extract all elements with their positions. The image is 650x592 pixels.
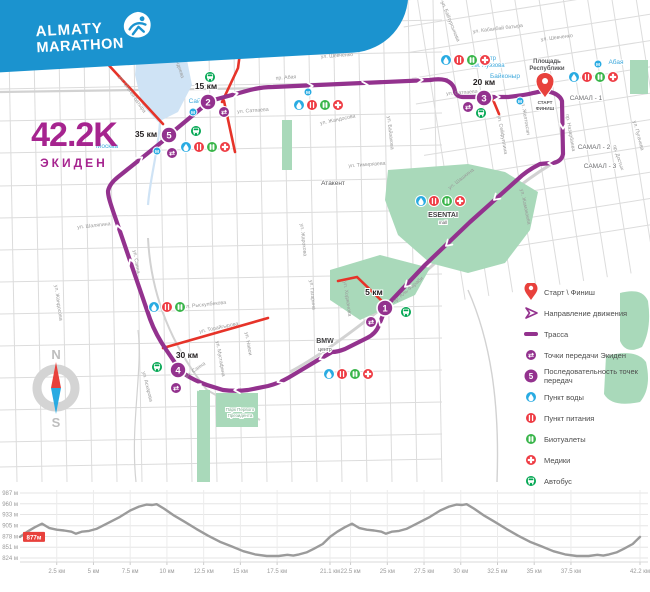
- x-tick-label: 37.5 км: [561, 569, 581, 575]
- finish-label: ФИНИШ: [536, 106, 555, 111]
- km-label: 5 км: [365, 287, 383, 297]
- y-tick-label: 878 м: [2, 534, 18, 540]
- x-tick-label: 10 км: [159, 569, 174, 575]
- x-tick-label: 5 км: [88, 569, 100, 575]
- svg-text:⇄: ⇄: [528, 351, 534, 359]
- bus-icon: [401, 307, 412, 318]
- wc-icon: [350, 369, 361, 380]
- km-label: 35 км: [135, 129, 157, 139]
- legend-icon-wrap: [521, 451, 541, 469]
- metro-icon: М: [516, 97, 524, 105]
- legend-icon-wrap: [521, 430, 541, 448]
- exchange-icon: ⇄: [167, 148, 178, 159]
- food-icon: [337, 369, 348, 380]
- place-label: Республики: [529, 65, 564, 72]
- metro-icon: М: [189, 108, 197, 116]
- race-distance: 42.2K: [24, 118, 124, 152]
- bus-icon: [191, 126, 202, 137]
- legend-icon-wrap: 5: [521, 367, 541, 385]
- svg-text:М: М: [518, 99, 522, 105]
- legend-food-icon: [522, 409, 540, 427]
- food-icon: [307, 100, 318, 111]
- svg-text:⇄: ⇄: [173, 384, 179, 392]
- medic-icon: [363, 369, 374, 380]
- water-icon: [441, 55, 452, 66]
- metro-icon: М: [153, 147, 161, 155]
- legend-label: Медики: [541, 456, 570, 465]
- start-elevation-value: 877м: [27, 534, 42, 541]
- exchange-icon: ⇄: [171, 383, 182, 394]
- medic-icon: [333, 100, 344, 111]
- exchange-icon: ⇄: [219, 107, 230, 118]
- compass-s-label: S: [52, 415, 61, 430]
- park-strip-west: [282, 120, 292, 170]
- place-label: центр: [318, 347, 332, 353]
- legend-pin-icon: [522, 283, 540, 301]
- x-tick-label: 30 км: [453, 569, 468, 575]
- x-tick-label: 17.5 км: [267, 569, 287, 575]
- elevation-chart: 987 м960 м933 м905 м878 м851 м824 м2.5 к…: [0, 485, 650, 592]
- legend-bus-icon: [522, 472, 540, 490]
- water-icon: [324, 369, 335, 380]
- place-label: САМАЛ - 2: [578, 144, 611, 151]
- svg-text:2: 2: [205, 97, 210, 108]
- water-icon: [149, 302, 160, 313]
- legend-icon-wrap: [521, 409, 541, 427]
- legend-number-icon: 5: [522, 367, 540, 385]
- x-tick-label: 15 км: [233, 569, 248, 575]
- legend-medic-icon: [522, 451, 540, 469]
- legend-icon-wrap: ⇄: [521, 346, 541, 364]
- metro-icon: М: [304, 88, 312, 96]
- km-marker: 3: [476, 90, 492, 106]
- x-tick-label: 12.5 км: [194, 569, 214, 575]
- bus-icon: [476, 108, 487, 119]
- legend-track-icon: [522, 325, 540, 343]
- food-icon: [194, 142, 205, 153]
- x-tick-label: 21.1 км: [320, 569, 340, 575]
- food-icon: [526, 413, 537, 424]
- svg-text:⇄: ⇄: [368, 318, 374, 326]
- svg-text:М: М: [191, 110, 195, 116]
- legend-icon-wrap: [521, 388, 541, 406]
- logo: ALMATY MARATHON: [35, 20, 124, 57]
- y-tick-label: 960 м: [2, 502, 18, 508]
- food-icon: [162, 302, 173, 313]
- wc-icon: [595, 72, 606, 83]
- legend-icon-wrap: [521, 325, 541, 343]
- medic-icon: [220, 142, 231, 153]
- legend-item: Направление движения: [521, 304, 649, 322]
- svg-text:5: 5: [529, 372, 534, 381]
- place-label: mall: [439, 220, 447, 225]
- wc-icon: [207, 142, 218, 153]
- place-label: САМАЛ - 1: [570, 95, 603, 102]
- place-label: САМАЛ - 3: [584, 163, 617, 170]
- medic-icon: [455, 196, 466, 207]
- place-label: Парк Первого: [226, 407, 255, 412]
- exchange-icon: ⇄: [366, 317, 377, 328]
- x-tick-label: 7.5 км: [122, 569, 139, 575]
- legend-wc-icon: [522, 430, 540, 448]
- x-tick-label: 42.2 км: [630, 569, 650, 575]
- legend-label: Точки передачи Экиден: [541, 351, 626, 360]
- svg-text:М: М: [306, 90, 310, 96]
- x-tick-label: 25 км: [380, 569, 395, 575]
- water-icon: [416, 196, 427, 207]
- race-type: ЭКИДЕН: [24, 156, 124, 170]
- x-tick-label: 22.5 км: [341, 569, 361, 575]
- legend-item: 5Последовательность точек передач: [521, 367, 649, 385]
- svg-text:М: М: [596, 62, 600, 68]
- water-icon: [569, 72, 580, 83]
- svg-text:1: 1: [382, 303, 388, 314]
- legend-water-icon: [522, 388, 540, 406]
- legend-item: Пункт воды: [521, 388, 649, 406]
- metro-icon: М: [594, 60, 602, 68]
- legend-label: Трасса: [541, 330, 568, 339]
- svg-text:⇄: ⇄: [221, 108, 227, 116]
- legend-item: Биотуалеты: [521, 430, 649, 448]
- wc-icon: [442, 196, 453, 207]
- chart-background: [0, 485, 650, 592]
- legend-label: Пункт воды: [541, 393, 584, 402]
- y-tick-label: 851 м: [2, 545, 18, 551]
- bus-icon: [526, 476, 537, 487]
- place-label: ESENTAI: [428, 212, 458, 219]
- km-marker: 1: [377, 300, 393, 316]
- legend-label: Биотуалеты: [541, 435, 586, 444]
- km-marker: 5: [161, 127, 177, 143]
- legend-exchange-icon: ⇄: [522, 346, 540, 364]
- water-icon: [181, 142, 192, 153]
- legend-item: Пункт питания: [521, 409, 649, 427]
- legend-icon-wrap: [521, 283, 541, 301]
- medic-icon: [608, 72, 619, 83]
- legend-icon-wrap: [521, 472, 541, 490]
- water-icon: [526, 392, 537, 403]
- y-tick-label: 824 м: [2, 556, 18, 562]
- wc-icon: [467, 55, 478, 66]
- legend-label: Последовательность точек передач: [541, 367, 649, 385]
- exchange-icon: ⇄: [463, 102, 474, 113]
- park-ne: [630, 60, 648, 94]
- legend-label: Автобус: [541, 477, 572, 486]
- start-label: СТАРТ: [538, 100, 553, 105]
- wc-icon: [320, 100, 331, 111]
- x-tick-label: 32.5 км: [487, 569, 507, 575]
- km-label: 20 км: [473, 77, 495, 87]
- wc-icon: [526, 434, 537, 445]
- food-icon: [454, 55, 465, 66]
- legend-label: Направление движения: [541, 309, 627, 318]
- runner-emblem-icon: [121, 10, 157, 42]
- place-label-blue: Абая: [608, 58, 624, 66]
- legend-direction-icon: [522, 304, 540, 322]
- race-title: 42.2K ЭКИДЕН: [24, 118, 124, 170]
- place-label: Атакент: [321, 180, 345, 187]
- x-tick-label: 35 км: [527, 569, 542, 575]
- km-marker: 4: [170, 362, 186, 378]
- legend-item: Медики: [521, 451, 649, 469]
- food-icon: [429, 196, 440, 207]
- y-tick-label: 905 м: [2, 524, 18, 530]
- medic-icon: [526, 455, 537, 466]
- svg-text:3: 3: [481, 93, 486, 104]
- map-legend: Старт \ ФинишНаправление движенияТрасса⇄…: [521, 283, 649, 493]
- svg-text:М: М: [155, 149, 159, 155]
- legend-item: Трасса: [521, 325, 649, 343]
- legend-icon-wrap: [521, 304, 541, 322]
- medic-icon: [480, 55, 491, 66]
- place-label: Президента: [228, 413, 253, 418]
- svg-text:4: 4: [175, 365, 181, 376]
- compass-n-label: N: [51, 347, 60, 362]
- km-marker: 2: [200, 94, 216, 110]
- y-tick-label: 933 м: [2, 513, 18, 519]
- x-tick-label: 2.5 км: [48, 569, 65, 575]
- legend-item: ⇄Точки передачи Экиден: [521, 346, 649, 364]
- wc-icon: [175, 302, 186, 313]
- exchange-icon: ⇄: [526, 350, 537, 361]
- bus-icon: [152, 362, 163, 373]
- place-label: Площадь: [533, 59, 561, 65]
- svg-text:5: 5: [166, 130, 172, 141]
- legend-label: Старт \ Финиш: [541, 288, 595, 297]
- km-label: 30 км: [176, 350, 198, 360]
- legend-label: Пункт питания: [541, 414, 594, 423]
- svg-text:⇄: ⇄: [169, 149, 175, 157]
- water-icon: [294, 100, 305, 111]
- legend-item: Автобус: [521, 472, 649, 490]
- km-label: 15 км: [195, 81, 217, 91]
- park-strip: [197, 390, 210, 482]
- place-label: BMW: [316, 338, 334, 345]
- legend-item: Старт \ Финиш: [521, 283, 649, 301]
- svg-text:⇄: ⇄: [465, 103, 471, 111]
- y-tick-label: 987 м: [2, 491, 18, 497]
- x-tick-label: 27.5 км: [414, 569, 434, 575]
- food-icon: [582, 72, 593, 83]
- marathon-route-poster: { "colors": { "brand_blue": "#1b93cf", "…: [0, 0, 650, 592]
